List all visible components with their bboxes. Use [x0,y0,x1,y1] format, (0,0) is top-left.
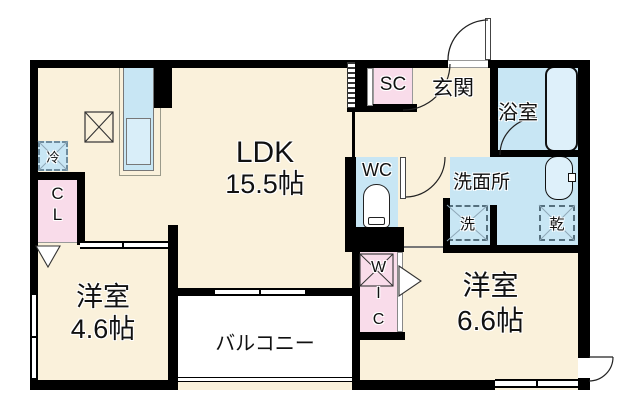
room66-label-block: 洋室 6.6帖 [408,268,573,338]
corridor-opening-line [404,246,443,248]
wall-under-sc [347,104,417,112]
washer-label: 洗 [447,205,488,241]
dryer-label: 乾 [539,205,575,241]
wc-label: WC [356,160,398,181]
right-door-opening [578,357,590,378]
room-ldk-size: 15.5帖 [190,169,340,200]
room66-name: 洋室 [408,268,573,303]
wall-wc-left [345,157,356,229]
washroom-label: 洗面所 [453,167,510,194]
cl-letter-c: C [38,183,77,204]
floor-plan: LDK 15.5帖 玄関 SC 浴室 WC 洗面所 冷 洗 乾 C L W I … [0,0,640,406]
wall-wic-left [352,243,360,383]
balcony-label: バルコニー [178,327,352,356]
room46-size: 4.6帖 [38,313,168,345]
balcony-railing [178,377,352,382]
wall-bath-washroom [490,150,590,157]
wall-under-wic [352,332,405,340]
window-left-tick [30,336,38,338]
genkan-label: 玄関 [432,72,474,102]
wall-top-left [30,60,448,68]
wall-ldk-balcony-b [305,288,352,296]
kitchen-sink [126,118,151,165]
wic-letter-i: I [360,281,397,307]
wall-bottom-corner [578,378,590,390]
wall-bottom-right [352,380,495,390]
wall-genkan-bath [490,60,498,157]
wic-letter-w: W [360,255,397,281]
entrance-door-leaf [485,18,491,60]
wall-top-right [488,60,590,68]
cl-letter-l: L [38,204,77,225]
wall-cl-right [77,172,85,245]
room46-label-block: 洋室 4.6帖 [38,281,168,345]
ldk-label-block: LDK 15.5帖 [190,137,340,200]
exterior-door-arc [589,357,613,381]
wall-kitchen-block [154,60,172,108]
wall-bottom-left [30,380,178,390]
wic-letter-c: C [360,307,397,333]
bathtub-icon [545,66,578,152]
room46-name: 洋室 [38,281,168,313]
toilet-tank-icon [368,217,385,225]
wall-ldk-hall-thin [352,112,355,157]
cl-label-block: C L [38,183,77,225]
vanity-tap-icon [568,173,576,182]
entrance-door-arc [448,20,488,60]
window-room66-tick [536,379,538,388]
hatched-strip [347,62,355,108]
sliding-door-tick [122,241,124,249]
wic-door-leaf [397,252,403,332]
wall-ldk-balcony-a [168,288,215,296]
wall-washroom-bottom [443,245,590,253]
fridge-label: 冷 [38,141,68,171]
wall-right [578,60,590,357]
wall-room46-right [168,225,178,390]
wic-label-block: W I C [360,255,397,333]
room66-size: 6.6帖 [408,303,573,338]
window-ldk-tick [259,288,261,296]
room-ldk-name: LDK [190,137,340,169]
wall-washer-dryer [490,205,497,245]
entrance-opening [448,60,488,68]
washroom-door-leaf [400,157,406,199]
sc-label: SC [373,74,413,96]
bathroom-label: 浴室 [498,96,538,125]
sliding-door-room46 [80,241,168,249]
